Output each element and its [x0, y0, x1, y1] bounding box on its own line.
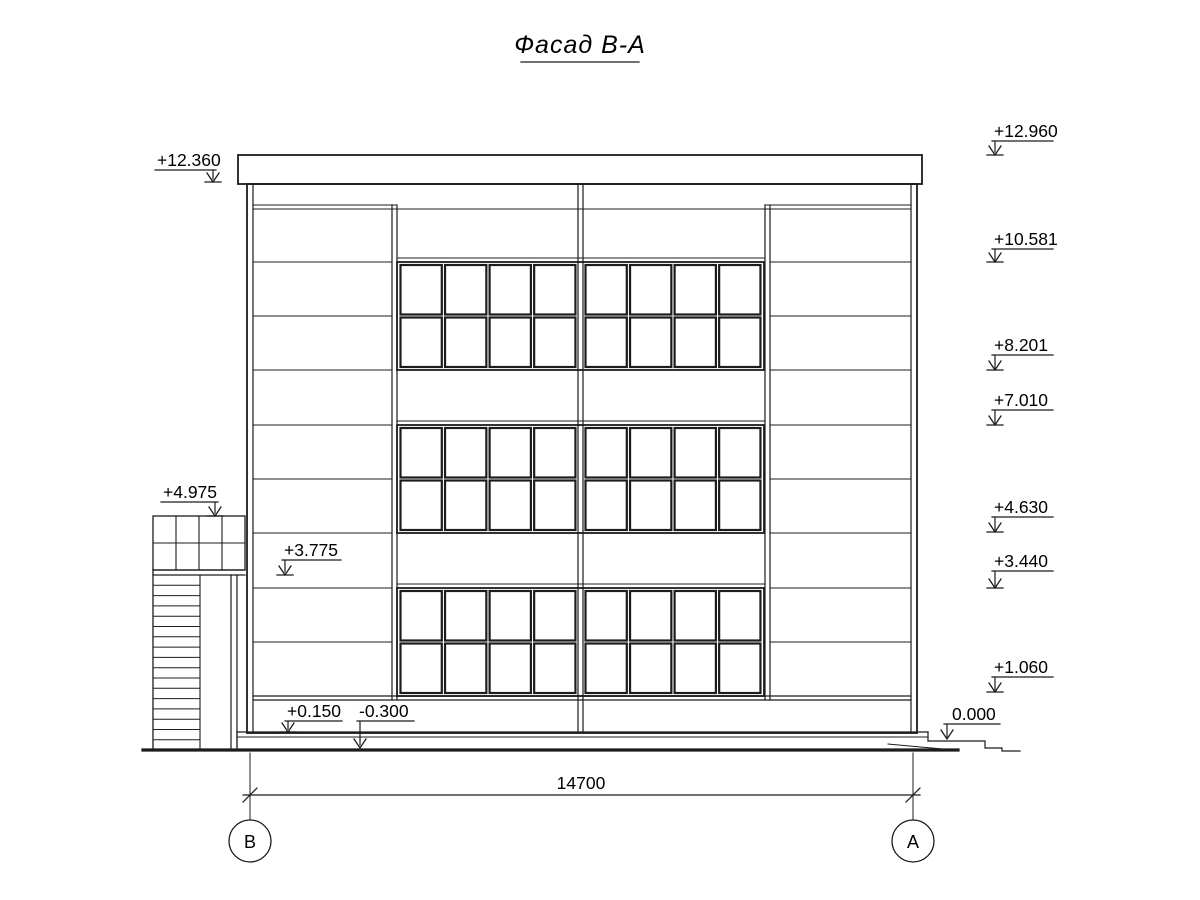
elevation-mark-10-581: +10.581: [987, 229, 1058, 262]
elevation-mark-1-060: +1.060: [987, 657, 1053, 692]
elevation-value: 0.000: [952, 704, 996, 724]
elevation-value: +8.201: [994, 335, 1048, 355]
elevation-mark-4-630: +4.630: [987, 497, 1053, 532]
leader-line: [155, 170, 216, 179]
elevation-value: +1.060: [994, 657, 1048, 677]
facade-verticals: [392, 184, 770, 733]
elevation-value: +4.630: [994, 497, 1048, 517]
elevation-value: +10.581: [994, 229, 1058, 249]
facade-wall: [247, 184, 917, 733]
base-plinth: [143, 732, 1020, 751]
elevation-mark-7-010: +7.010: [987, 390, 1053, 425]
elevation-value: +3.775: [284, 540, 338, 560]
elevation-mark-8-201: +8.201: [987, 335, 1053, 370]
facade-elevation-drawing: Фасад В-А: [0, 0, 1200, 900]
window-grid: [401, 265, 761, 693]
axis-label-b: В: [244, 832, 256, 852]
leader-line: [285, 721, 342, 729]
elevation-value: +12.360: [157, 150, 221, 170]
elevation-marks-left: +12.360 +4.975 +3.775 +0.150 -0.300: [155, 150, 414, 748]
elevation-value: +12.960: [994, 121, 1058, 141]
stair-tower: [153, 516, 245, 750]
drawing-header: Фасад В-А: [514, 31, 646, 62]
pilaster-floor-lines: [253, 262, 911, 642]
building-facade: [238, 155, 922, 733]
leader-line: [992, 249, 1053, 260]
page-title: Фасад В-А: [514, 31, 646, 59]
elevation-mark-12-360: +12.360: [155, 150, 221, 182]
elevation-mark-0-000: 0.000: [941, 704, 1000, 739]
elevation-mark-3-775: +3.775: [277, 540, 341, 575]
parapet: [238, 155, 922, 184]
dimension-and-axes: 14700 В А: [229, 753, 934, 862]
axis-label-a: А: [907, 832, 919, 852]
elevation-value: -0.300: [359, 701, 409, 721]
elevation-mark-minus-0-300: -0.300: [354, 701, 414, 748]
elevation-mark-4-975: +4.975: [161, 482, 223, 516]
stair-treads: [153, 585, 200, 740]
elevation-marks-right: +12.960 +10.581 +8.201 +7.010 +4.630 +3.…: [941, 121, 1058, 739]
elevation-mark-12-960: +12.960: [987, 121, 1058, 155]
elevation-value: +4.975: [163, 482, 217, 502]
drawing-canvas: Фасад В-А: [0, 0, 1200, 900]
elevation-mark-0-150: +0.150: [280, 701, 342, 732]
elevation-value: +3.440: [994, 551, 1048, 571]
dimension-value: 14700: [557, 773, 606, 793]
elevation-mark-3-440: +3.440: [987, 551, 1053, 588]
elevation-value: +0.150: [287, 701, 341, 721]
elevation-value: +7.010: [994, 390, 1048, 410]
